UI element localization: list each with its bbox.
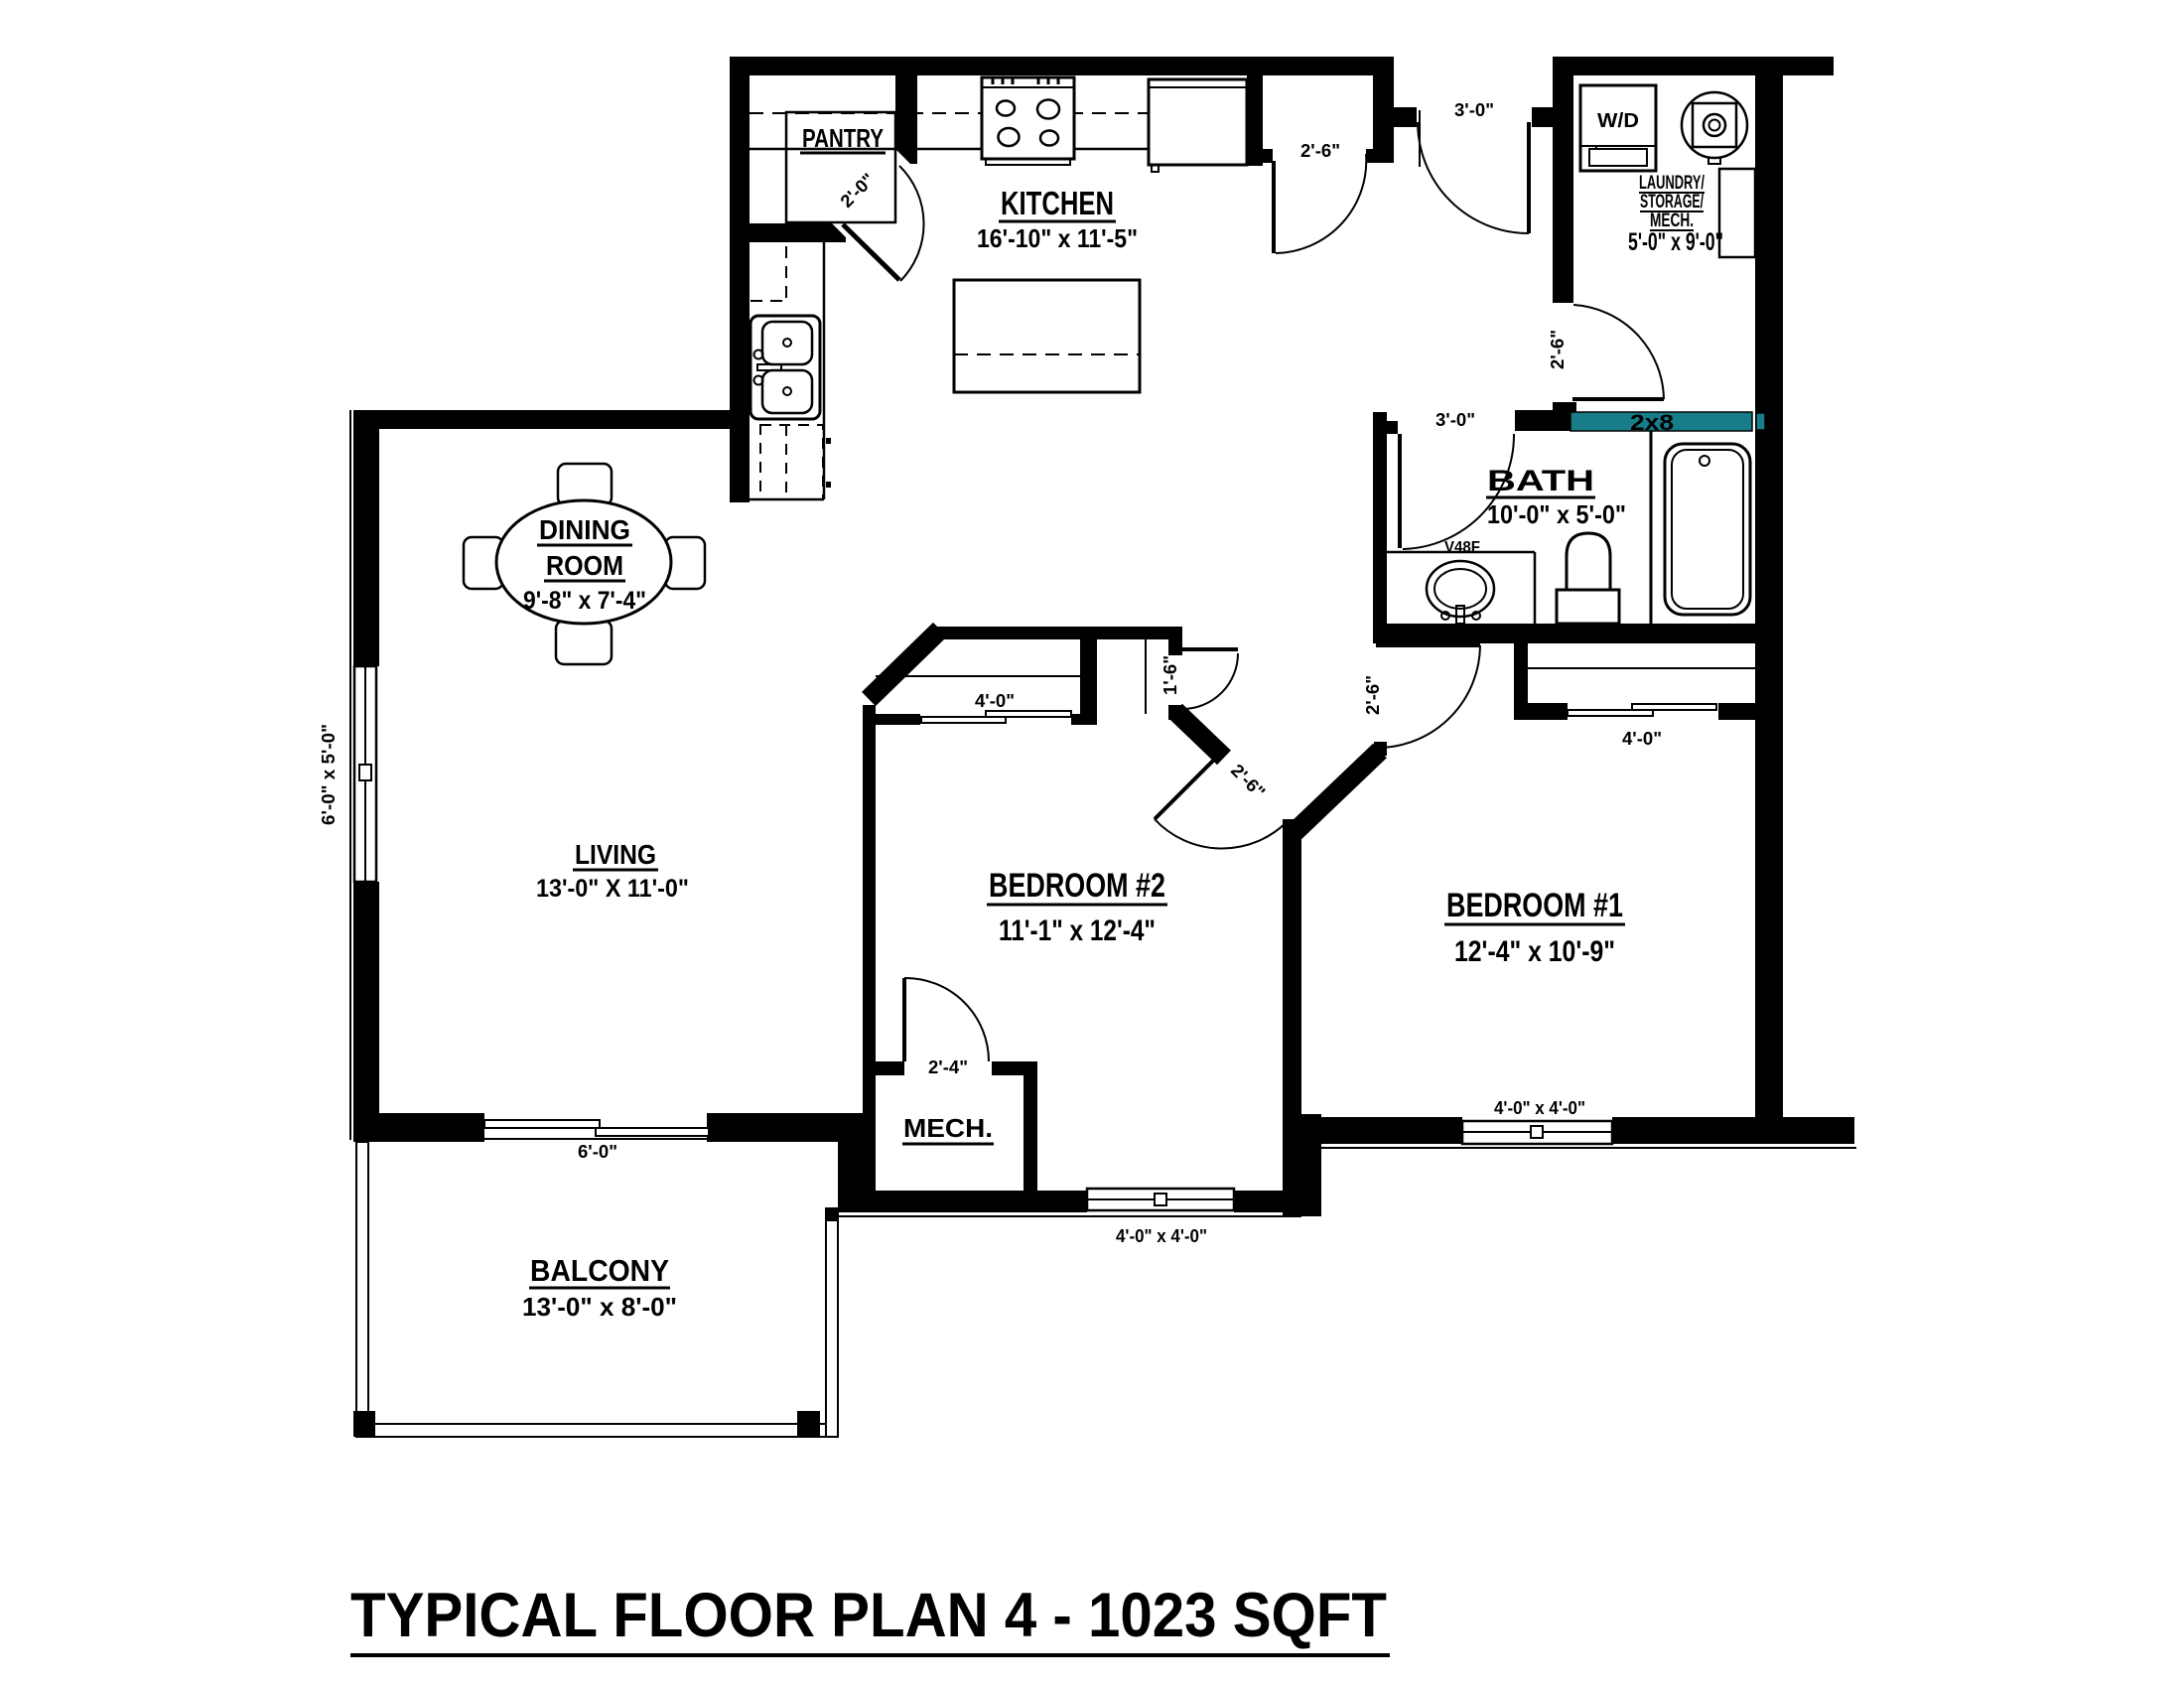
svg-text:V48F: V48F: [1444, 539, 1480, 556]
svg-text:6'-0" x 5'-0": 6'-0" x 5'-0": [319, 724, 339, 825]
svg-text:2'-6": 2'-6": [1300, 141, 1340, 161]
svg-text:4'-0": 4'-0": [1622, 729, 1662, 749]
svg-text:TYPICAL FLOOR PLAN 4 - 1023 SQ: TYPICAL FLOOR PLAN 4 - 1023 SQFT: [350, 1581, 1387, 1650]
svg-text:13'-0" X 11'-0": 13'-0" X 11'-0": [536, 875, 689, 903]
svg-text:LAUNDRY/: LAUNDRY/: [1639, 173, 1705, 194]
svg-text:11'-1" x 12'-4": 11'-1" x 12'-4": [999, 914, 1156, 947]
svg-text:5'-0" x 9'-0": 5'-0" x 9'-0": [1628, 228, 1723, 256]
svg-text:16'-10" x 11'-5": 16'-10" x 11'-5": [977, 223, 1138, 253]
svg-text:12'-4" x 10'-9": 12'-4" x 10'-9": [1454, 935, 1615, 968]
svg-text:ROOM: ROOM: [546, 550, 623, 581]
svg-text:10'-0" x 5'-0": 10'-0" x 5'-0": [1487, 499, 1626, 529]
svg-text:LIVING: LIVING: [575, 839, 656, 870]
svg-text:2'-4": 2'-4": [928, 1057, 968, 1077]
svg-text:2'-6": 2'-6": [1548, 330, 1568, 369]
svg-text:MECH.: MECH.: [903, 1113, 993, 1143]
svg-text:4'-0" x 4'-0": 4'-0" x 4'-0": [1494, 1098, 1585, 1118]
svg-text:3'-0": 3'-0": [1435, 410, 1475, 430]
svg-text:3'-0": 3'-0": [1454, 100, 1494, 120]
svg-text:4'-0" x 4'-0": 4'-0" x 4'-0": [1116, 1226, 1207, 1246]
svg-text:STORAGE/: STORAGE/: [1640, 192, 1704, 212]
svg-text:BEDROOM #1: BEDROOM #1: [1446, 887, 1623, 924]
svg-text:1'-6": 1'-6": [1160, 655, 1180, 695]
svg-text:BALCONY: BALCONY: [530, 1253, 669, 1288]
svg-text:9'-8" x 7'-4": 9'-8" x 7'-4": [523, 587, 646, 615]
svg-text:KITCHEN: KITCHEN: [1001, 185, 1114, 221]
svg-text:4'-0": 4'-0": [975, 691, 1015, 711]
svg-text:W/D: W/D: [1597, 110, 1639, 132]
svg-text:13'-0" x 8'-0": 13'-0" x 8'-0": [522, 1292, 677, 1322]
svg-text:2'-6": 2'-6": [1363, 675, 1383, 715]
svg-text:DINING: DINING: [539, 514, 630, 545]
svg-text:6'-0": 6'-0": [578, 1142, 617, 1162]
svg-text:BEDROOM #2: BEDROOM #2: [989, 867, 1165, 905]
